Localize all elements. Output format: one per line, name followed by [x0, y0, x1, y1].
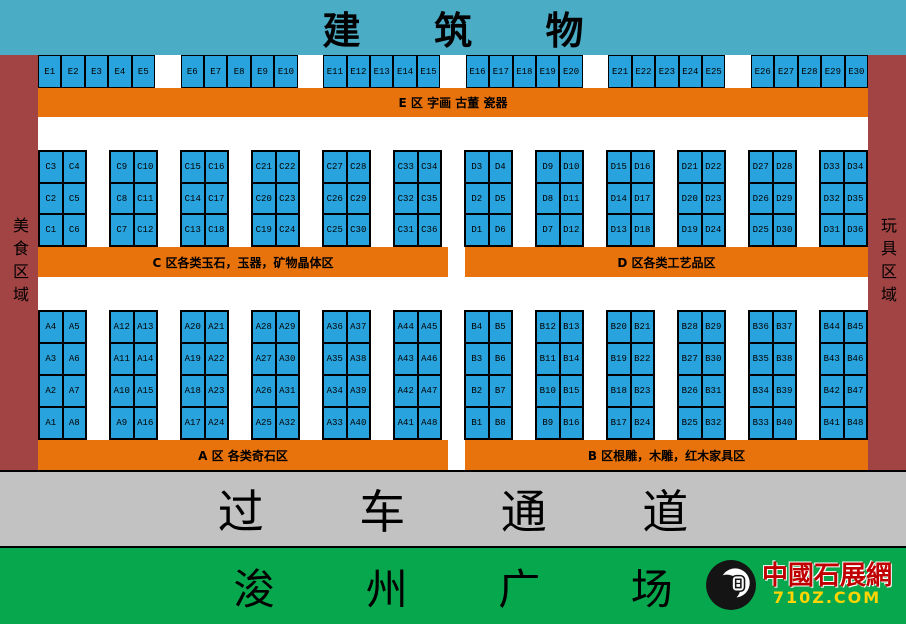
booth-row: C32C35: [394, 183, 441, 215]
booth-cell-d16: D16: [631, 151, 655, 183]
booth-cell-b2: B2: [465, 375, 489, 407]
booth-cell-a12: A12: [110, 311, 134, 343]
booth-cell-c27: C27: [323, 151, 347, 183]
site-logo-url: 710Z.COM: [773, 590, 881, 607]
booth-cell-b19: B19: [607, 343, 631, 375]
booth-cell-d32: D32: [820, 183, 844, 215]
booth-cell-a21: A21: [205, 311, 229, 343]
booth-cell-d25: D25: [749, 214, 773, 246]
booth-cell-b18: B18: [607, 375, 631, 407]
booth-row: D7D12: [536, 214, 583, 246]
zone-d-block-6: D33D34D32D35D31D36: [819, 150, 868, 247]
booth-row: B18B23: [607, 375, 654, 407]
booth-cell-c17: C17: [205, 183, 229, 215]
booth-cell-d20: D20: [678, 183, 702, 215]
booth-row: A3A6: [39, 343, 86, 375]
zone-e-group-3: E11E12E13E14E15: [323, 55, 440, 88]
booth-cell-b5: B5: [489, 311, 513, 343]
booth-row: A28A29: [252, 311, 299, 343]
booth-cell-a8: A8: [63, 407, 87, 439]
booth-cell-d24: D24: [702, 214, 726, 246]
zone-c-block-5: C27C28C26C29C25C30: [322, 150, 371, 247]
booth-row: D15D16: [607, 151, 654, 183]
zone-a-block-3: A20A21A19A22A18A23A17A24: [180, 310, 229, 440]
booth-row: C9C10: [110, 151, 157, 183]
booth-cell-c24: C24: [276, 214, 300, 246]
booth-cell-c31: C31: [394, 214, 418, 246]
zone-e-bar-label: E 区 字画 古董 瓷器: [399, 94, 508, 111]
booth-row: A26A31: [252, 375, 299, 407]
zone-c-bar-label: C 区各类玉石，玉器，矿物晶体区: [153, 254, 334, 271]
booth-cell-d31: D31: [820, 214, 844, 246]
booth-cell-c33: C33: [394, 151, 418, 183]
booth-cell-c16: C16: [205, 151, 229, 183]
booth-cell-e18: E18: [513, 55, 536, 88]
booth-cell-e8: E8: [227, 55, 250, 88]
booth-cell-a7: A7: [63, 375, 87, 407]
booth-cell-b24: B24: [631, 407, 655, 439]
booth-cell-c35: C35: [418, 183, 442, 215]
booth-row: C19C24: [252, 214, 299, 246]
food-area-label: 美食区域: [7, 217, 31, 309]
booth-cell-b45: B45: [844, 311, 868, 343]
booth-row: C31C36: [394, 214, 441, 246]
booth-cell-d26: D26: [749, 183, 773, 215]
booth-row: D25D30: [749, 214, 796, 246]
booth-cell-b42: B42: [820, 375, 844, 407]
booth-cell-d4: D4: [489, 151, 513, 183]
booth-row: A20A21: [181, 311, 228, 343]
site-logo: 中國石展網 710Z.COM: [705, 559, 892, 611]
booth-row: D31D36: [820, 214, 867, 246]
booth-cell-c18: C18: [205, 214, 229, 246]
booth-row: B41B48: [820, 407, 867, 439]
booth-cell-e22: E22: [632, 55, 655, 88]
booth-cell-d17: D17: [631, 183, 655, 215]
booth-cell-d23: D23: [702, 183, 726, 215]
booth-cell-e28: E28: [798, 55, 821, 88]
booth-cell-a3: A3: [39, 343, 63, 375]
booth-cell-c8: C8: [110, 183, 134, 215]
booth-cell-a6: A6: [63, 343, 87, 375]
booth-cell-b13: B13: [560, 311, 584, 343]
booth-row: C27C28: [323, 151, 370, 183]
booth-cell-e7: E7: [204, 55, 227, 88]
booth-cell-c29: C29: [347, 183, 371, 215]
zone-b-block-6: B44B45B43B46B42B47B41B48: [819, 310, 868, 440]
booth-row: A9A16: [110, 407, 157, 439]
booth-cell-b26: B26: [678, 375, 702, 407]
booth-cell-d27: D27: [749, 151, 773, 183]
booth-cell-d28: D28: [773, 151, 797, 183]
booth-cell-d36: D36: [844, 214, 868, 246]
booth-row: D8D11: [536, 183, 583, 215]
booth-cell-b37: B37: [773, 311, 797, 343]
booth-cell-d33: D33: [820, 151, 844, 183]
booth-row: B33B40: [749, 407, 796, 439]
zone-e-group-6: E26E27E28E29E30: [751, 55, 868, 88]
booth-cell-e21: E21: [608, 55, 631, 88]
booth-cell-b3: B3: [465, 343, 489, 375]
booth-cell-a15: A15: [134, 375, 158, 407]
booth-cell-a29: A29: [276, 311, 300, 343]
booth-cell-a28: A28: [252, 311, 276, 343]
booth-cell-a13: A13: [134, 311, 158, 343]
booth-row: A33A40: [323, 407, 370, 439]
booth-cell-c14: C14: [181, 183, 205, 215]
booth-row: B25B32: [678, 407, 725, 439]
zone-b-bar-label: B 区根雕，木雕，红木家具区: [588, 447, 745, 464]
booth-row: B11B14: [536, 343, 583, 375]
booth-row: A35A38: [323, 343, 370, 375]
booth-row: A34A39: [323, 375, 370, 407]
booth-cell-c2: C2: [39, 183, 63, 215]
booth-cell-c21: C21: [252, 151, 276, 183]
booth-cell-b44: B44: [820, 311, 844, 343]
booth-row: B19B22: [607, 343, 654, 375]
booth-cell-a5: A5: [63, 311, 87, 343]
building-banner: 建 筑 物: [0, 0, 906, 55]
booth-row: D27D28: [749, 151, 796, 183]
booth-row: C15C16: [181, 151, 228, 183]
booth-cell-c12: C12: [134, 214, 158, 246]
booth-row: D33D34: [820, 151, 867, 183]
booth-row: C14C17: [181, 183, 228, 215]
booth-cell-a14: A14: [134, 343, 158, 375]
booth-cell-d19: D19: [678, 214, 702, 246]
booth-cell-b17: B17: [607, 407, 631, 439]
zone-d-block-2: D9D10D8D11D7D12: [535, 150, 584, 247]
booth-row: A11A14: [110, 343, 157, 375]
booth-cell-b39: B39: [773, 375, 797, 407]
booth-row: A1A8: [39, 407, 86, 439]
booth-cell-a18: A18: [181, 375, 205, 407]
booth-cell-d6: D6: [489, 214, 513, 246]
booth-cell-b48: B48: [844, 407, 868, 439]
booth-row: C8C11: [110, 183, 157, 215]
booth-cell-a36: A36: [323, 311, 347, 343]
market-floor-plan: 建 筑 物 美食区域 玩具区域 E1E2E3E4E5 E6E7E8E9E10 E…: [0, 0, 906, 624]
booth-cell-a44: A44: [394, 311, 418, 343]
zone-c-block-1: C3C4C2C5C1C6: [38, 150, 87, 247]
booth-cell-e13: E13: [370, 55, 393, 88]
booth-cell-e10: E10: [274, 55, 297, 88]
stone-seal-icon: [705, 559, 757, 611]
booth-cell-c26: C26: [323, 183, 347, 215]
booth-cell-a41: A41: [394, 407, 418, 439]
booth-row: B26B31: [678, 375, 725, 407]
booth-cell-a23: A23: [205, 375, 229, 407]
zone-a-block-1: A4A5A3A6A2A7A1A8: [38, 310, 87, 440]
booth-cell-c32: C32: [394, 183, 418, 215]
booth-cell-c28: C28: [347, 151, 371, 183]
booth-cell-c5: C5: [63, 183, 87, 215]
booth-row: C20C23: [252, 183, 299, 215]
booth-cell-a46: A46: [418, 343, 442, 375]
booth-cell-b27: B27: [678, 343, 702, 375]
booth-cell-e9: E9: [251, 55, 274, 88]
booth-cell-c10: C10: [134, 151, 158, 183]
toy-area-corridor: 玩具区域: [868, 55, 906, 470]
zone-c-block-3: C15C16C14C17C13C18: [180, 150, 229, 247]
booth-row: B34B39: [749, 375, 796, 407]
booth-row: E16E17E18E19E20: [466, 55, 583, 88]
booth-cell-a11: A11: [110, 343, 134, 375]
booth-cell-b15: B15: [560, 375, 584, 407]
booth-cell-b20: B20: [607, 311, 631, 343]
booth-cell-e2: E2: [61, 55, 84, 88]
booth-cell-c4: C4: [63, 151, 87, 183]
booth-cell-e14: E14: [393, 55, 416, 88]
zone-a-bar-label: A 区 各类奇石区: [198, 447, 288, 464]
zone-c-bar: C 区各类玉石，玉器，矿物晶体区: [38, 247, 448, 277]
booth-cell-c6: C6: [63, 214, 87, 246]
zone-c-block-4: C21C22C20C23C19C24: [251, 150, 300, 247]
booth-row: D13D18: [607, 214, 654, 246]
booth-cell-e17: E17: [489, 55, 512, 88]
booth-row: B1B8: [465, 407, 512, 439]
booth-cell-c25: C25: [323, 214, 347, 246]
booth-cell-c19: C19: [252, 214, 276, 246]
booth-cell-c20: C20: [252, 183, 276, 215]
booth-cell-b21: B21: [631, 311, 655, 343]
booth-cell-d9: D9: [536, 151, 560, 183]
booth-cell-d15: D15: [607, 151, 631, 183]
booth-row: C2C5: [39, 183, 86, 215]
booth-cell-e26: E26: [751, 55, 774, 88]
booth-row: B3B6: [465, 343, 512, 375]
vehicle-lane: 过 车 通 道: [0, 470, 906, 548]
booth-cell-a32: A32: [276, 407, 300, 439]
zone-b-block-2: B12B13B11B14B10B15B9B16: [535, 310, 584, 440]
booth-cell-e5: E5: [132, 55, 155, 88]
booth-cell-e11: E11: [323, 55, 346, 88]
booth-cell-b30: B30: [702, 343, 726, 375]
booth-cell-b25: B25: [678, 407, 702, 439]
booth-cell-b38: B38: [773, 343, 797, 375]
booth-cell-a22: A22: [205, 343, 229, 375]
booth-row: B9B16: [536, 407, 583, 439]
booth-row: A2A7: [39, 375, 86, 407]
booth-cell-a45: A45: [418, 311, 442, 343]
zone-b-block-5: B36B37B35B38B34B39B33B40: [748, 310, 797, 440]
booth-row: A17A24: [181, 407, 228, 439]
booth-cell-a33: A33: [323, 407, 347, 439]
site-logo-name: 中國石展網: [762, 563, 892, 590]
booth-cell-a25: A25: [252, 407, 276, 439]
booth-cell-a10: A10: [110, 375, 134, 407]
booth-cell-e24: E24: [679, 55, 702, 88]
zone-d-block-5: D27D28D26D29D25D30: [748, 150, 797, 247]
booth-cell-b43: B43: [820, 343, 844, 375]
booth-row: C1C6: [39, 214, 86, 246]
booth-cell-c1: C1: [39, 214, 63, 246]
zone-d-block-4: D21D22D20D23D19D24: [677, 150, 726, 247]
booth-cell-b47: B47: [844, 375, 868, 407]
booth-cell-e16: E16: [466, 55, 489, 88]
booth-cell-e4: E4: [108, 55, 131, 88]
booth-row: B43B46: [820, 343, 867, 375]
booth-cell-c11: C11: [134, 183, 158, 215]
booth-cell-b31: B31: [702, 375, 726, 407]
booth-cell-b40: B40: [773, 407, 797, 439]
booth-row: C33C34: [394, 151, 441, 183]
booth-cell-b6: B6: [489, 343, 513, 375]
booth-cell-a37: A37: [347, 311, 371, 343]
booth-row: E6E7E8E9E10: [181, 55, 298, 88]
zone-b-block-4: B28B29B27B30B26B31B25B32: [677, 310, 726, 440]
booth-cell-d18: D18: [631, 214, 655, 246]
booth-row: B17B24: [607, 407, 654, 439]
booth-cell-e30: E30: [845, 55, 868, 88]
booth-cell-c13: C13: [181, 214, 205, 246]
booth-cell-d10: D10: [560, 151, 584, 183]
booth-row: A10A15: [110, 375, 157, 407]
zone-d-block-1: D3D4D2D5D1D6: [464, 150, 513, 247]
vehicle-lane-label: 过 车 通 道: [176, 476, 731, 542]
booth-row: B27B30: [678, 343, 725, 375]
booth-cell-a34: A34: [323, 375, 347, 407]
booth-cell-b7: B7: [489, 375, 513, 407]
booth-cell-d21: D21: [678, 151, 702, 183]
booth-row: C7C12: [110, 214, 157, 246]
booth-row: C13C18: [181, 214, 228, 246]
zone-e-group-2: E6E7E8E9E10: [181, 55, 298, 88]
zone-e-group-4: E16E17E18E19E20: [466, 55, 583, 88]
booth-row: B10B15: [536, 375, 583, 407]
zone-b-bar: B 区根雕，木雕，红木家具区: [465, 440, 868, 470]
booth-row: B42B47: [820, 375, 867, 407]
booth-cell-b23: B23: [631, 375, 655, 407]
building-title: 建 筑 物: [290, 0, 615, 55]
booth-cell-c15: C15: [181, 151, 205, 183]
booth-cell-a9: A9: [110, 407, 134, 439]
zone-e-group-5: E21E22E23E24E25: [608, 55, 725, 88]
booth-cell-c7: C7: [110, 214, 134, 246]
booth-cell-b28: B28: [678, 311, 702, 343]
booth-cell-e3: E3: [85, 55, 108, 88]
booth-cell-a40: A40: [347, 407, 371, 439]
booth-cell-a43: A43: [394, 343, 418, 375]
booth-cell-a42: A42: [394, 375, 418, 407]
booth-cell-d13: D13: [607, 214, 631, 246]
booth-row: A27A30: [252, 343, 299, 375]
booth-row: A4A5: [39, 311, 86, 343]
zone-cd-booth-row: C3C4C2C5C1C6 C9C10C8C11C7C12 C15C16C14C1…: [38, 150, 868, 247]
booth-row: E21E22E23E24E25: [608, 55, 725, 88]
booth-row: A36A37: [323, 311, 370, 343]
zone-b-block-3: B20B21B19B22B18B23B17B24: [606, 310, 655, 440]
booth-cell-b41: B41: [820, 407, 844, 439]
booth-row: A41A48: [394, 407, 441, 439]
booth-cell-d11: D11: [560, 183, 584, 215]
booth-row: D32D35: [820, 183, 867, 215]
zone-a-block-5: A36A37A35A38A34A39A33A40: [322, 310, 371, 440]
zone-ab-booth-row: A4A5A3A6A2A7A1A8 A12A13A11A14A10A15A9A16…: [38, 310, 868, 440]
booth-cell-b32: B32: [702, 407, 726, 439]
booth-cell-c23: C23: [276, 183, 300, 215]
booth-cell-c9: C9: [110, 151, 134, 183]
zone-e-booth-row: E1E2E3E4E5 E6E7E8E9E10 E11E12E13E14E15 E…: [38, 55, 868, 88]
zone-d-bar-label: D 区各类工艺品区: [617, 254, 715, 271]
booth-cell-c22: C22: [276, 151, 300, 183]
booth-cell-b4: B4: [465, 311, 489, 343]
booth-cell-c3: C3: [39, 151, 63, 183]
booth-row: D20D23: [678, 183, 725, 215]
booth-cell-b11: B11: [536, 343, 560, 375]
zone-d-bar: D 区各类工艺品区: [465, 247, 868, 277]
booth-cell-e27: E27: [774, 55, 797, 88]
booth-row: A44A45: [394, 311, 441, 343]
zone-b-block-1: B4B5B3B6B2B7B1B8: [464, 310, 513, 440]
booth-row: D26D29: [749, 183, 796, 215]
booth-row: E26E27E28E29E30: [751, 55, 868, 88]
booth-cell-a19: A19: [181, 343, 205, 375]
booth-row: D1D6: [465, 214, 512, 246]
booth-cell-d35: D35: [844, 183, 868, 215]
booth-cell-e15: E15: [417, 55, 440, 88]
booth-row: B12B13: [536, 311, 583, 343]
booth-cell-a31: A31: [276, 375, 300, 407]
booth-row: B35B38: [749, 343, 796, 375]
booth-cell-d12: D12: [560, 214, 584, 246]
booth-cell-c30: C30: [347, 214, 371, 246]
booth-row: D14D17: [607, 183, 654, 215]
booth-cell-a1: A1: [39, 407, 63, 439]
booth-row: A19A22: [181, 343, 228, 375]
site-logo-text: 中國石展網 710Z.COM: [762, 563, 892, 607]
booth-cell-a20: A20: [181, 311, 205, 343]
booth-cell-c36: C36: [418, 214, 442, 246]
booth-row: D3D4: [465, 151, 512, 183]
booth-cell-a38: A38: [347, 343, 371, 375]
booth-cell-b33: B33: [749, 407, 773, 439]
booth-cell-e1: E1: [38, 55, 61, 88]
booth-row: B4B5: [465, 311, 512, 343]
booth-row: B2B7: [465, 375, 512, 407]
plaza: 浚 州 广 场 中國石展網 710Z.COM: [0, 548, 906, 624]
booth-cell-e6: E6: [181, 55, 204, 88]
booth-row: A42A47: [394, 375, 441, 407]
booth-cell-d14: D14: [607, 183, 631, 215]
booth-row: D21D22: [678, 151, 725, 183]
booth-cell-a24: A24: [205, 407, 229, 439]
booth-cell-b35: B35: [749, 343, 773, 375]
booth-cell-d8: D8: [536, 183, 560, 215]
booth-cell-e29: E29: [821, 55, 844, 88]
booth-cell-b29: B29: [702, 311, 726, 343]
booth-cell-e12: E12: [347, 55, 370, 88]
booth-cell-a30: A30: [276, 343, 300, 375]
toy-area-label: 玩具区域: [875, 217, 899, 309]
zone-a-block-4: A28A29A27A30A26A31A25A32: [251, 310, 300, 440]
booth-cell-b34: B34: [749, 375, 773, 407]
booth-cell-b1: B1: [465, 407, 489, 439]
booth-cell-c34: C34: [418, 151, 442, 183]
booth-cell-a16: A16: [134, 407, 158, 439]
booth-row: D9D10: [536, 151, 583, 183]
booth-cell-d34: D34: [844, 151, 868, 183]
zone-e-bar: E 区 字画 古董 瓷器: [38, 88, 868, 117]
booth-cell-b46: B46: [844, 343, 868, 375]
booth-cell-a27: A27: [252, 343, 276, 375]
booth-cell-d5: D5: [489, 183, 513, 215]
booth-cell-b22: B22: [631, 343, 655, 375]
booth-row: B44B45: [820, 311, 867, 343]
zone-a-block-6: A44A45A43A46A42A47A41A48: [393, 310, 442, 440]
zone-a-bar: A 区 各类奇石区: [38, 440, 448, 470]
booth-cell-d30: D30: [773, 214, 797, 246]
